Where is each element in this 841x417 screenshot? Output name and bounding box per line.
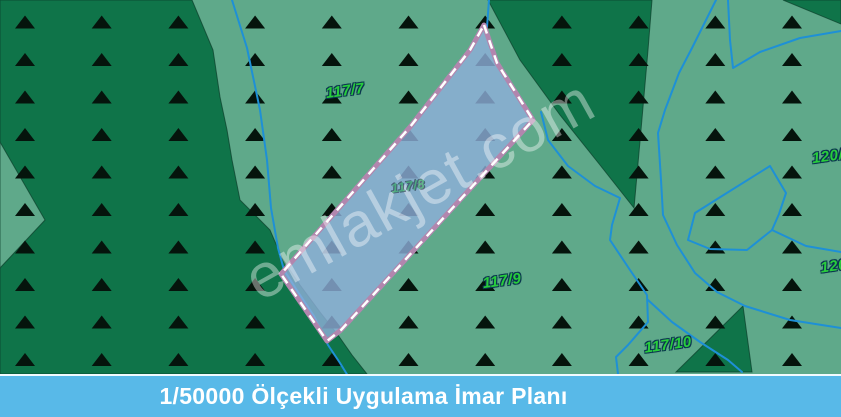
- parcel-number-label: 120/: [819, 255, 841, 276]
- zoning-map-canvas[interactable]: emlakjet.com 117/7117/9117/10120/8120/11…: [0, 0, 841, 374]
- map-scale-title: 1/50000 Ölçekli Uygulama İmar Planı: [0, 376, 727, 417]
- map-title-bar: 1/50000 Ölçekli Uygulama İmar Planı: [0, 374, 841, 417]
- listing-map-screenshot: emlakjet.com 117/7117/9117/10120/8120/11…: [0, 0, 841, 417]
